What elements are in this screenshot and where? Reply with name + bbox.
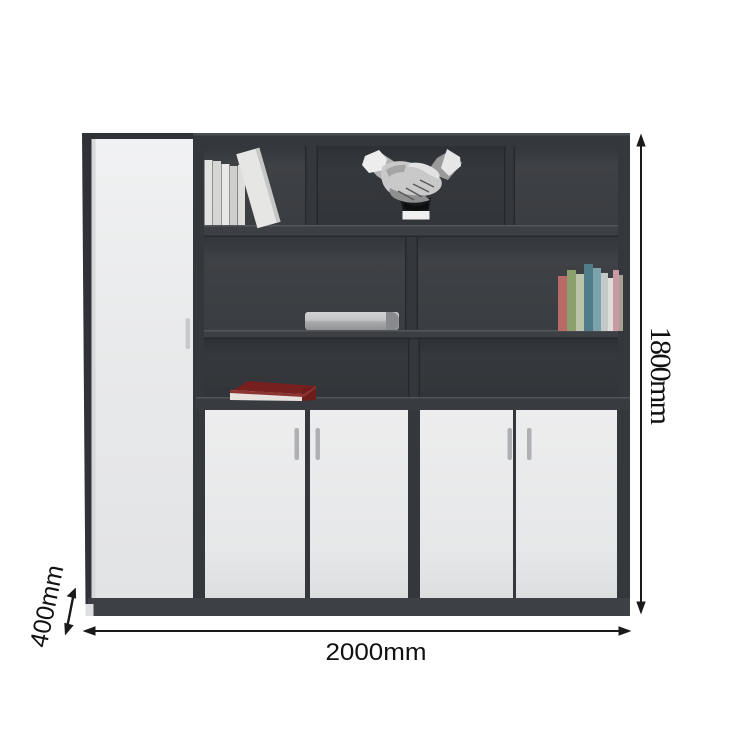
svg-text:1800mm: 1800mm bbox=[644, 327, 677, 425]
svg-text:2000mm: 2000mm bbox=[326, 639, 427, 666]
